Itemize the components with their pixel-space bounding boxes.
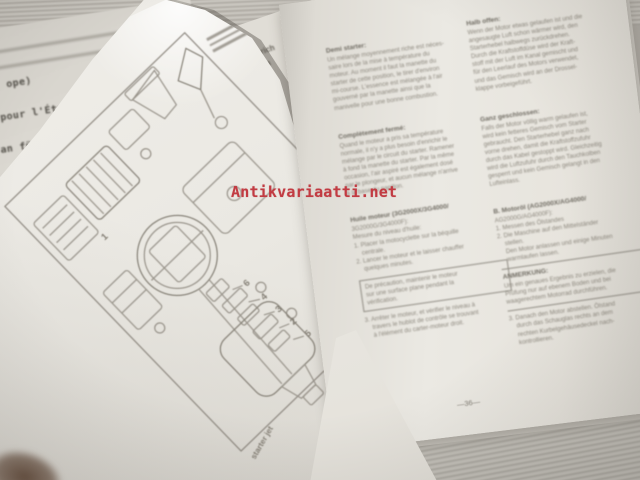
antikvariaatti-watermark: Antikvariaatti.net — [231, 183, 397, 201]
callout-number: 3 — [273, 304, 284, 316]
photo-of-open-manual: ope) s pour l'Éta an für Eu slightly ric… — [0, 0, 640, 480]
starter-jet-label: starter jet — [249, 424, 275, 460]
page-text-fragment: ope) — [6, 75, 33, 90]
page-number: —36— — [456, 397, 480, 409]
callout-number: 1 — [99, 231, 111, 243]
callout-number: 6 — [241, 278, 252, 290]
callout-number: 5 — [303, 328, 315, 340]
